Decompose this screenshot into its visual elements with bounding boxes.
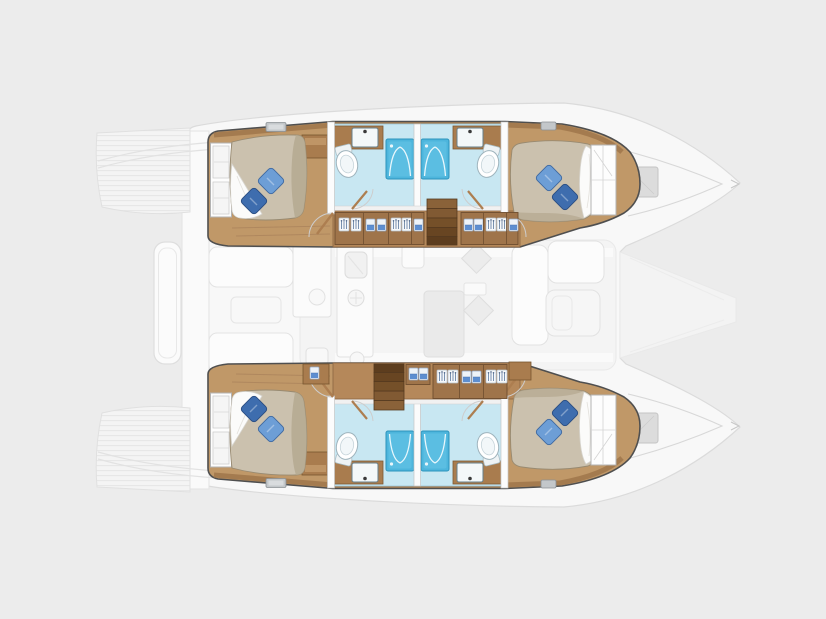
drawer-icon [414, 219, 423, 231]
drawer-icon [377, 219, 386, 231]
galley-round-fixture [309, 289, 325, 305]
hanging-clothes-icon [339, 218, 349, 231]
hanging-clothes-icon [448, 370, 458, 383]
swim-platform-starboard [96, 406, 190, 492]
side-table [464, 283, 486, 295]
drawer-icon [462, 371, 471, 383]
corridor-shelf [509, 362, 531, 380]
hanging-clothes-icon [486, 218, 496, 231]
swim-platform-port [96, 128, 190, 214]
saloon-seat [402, 245, 424, 268]
drawer-icon [366, 219, 375, 231]
drawer-icon [472, 371, 481, 383]
companionway-stairs-port [427, 199, 457, 245]
walkway-bottom [335, 353, 613, 362]
floorplan-canvas [0, 0, 826, 619]
sofa-vertical [512, 245, 548, 345]
saloon-ghost [293, 237, 616, 370]
drawer-icon [474, 219, 483, 231]
hanging-clothes-icon [402, 218, 412, 231]
drawer-icon [310, 367, 319, 379]
galley-counter-aft [293, 241, 331, 317]
drawer-icon [419, 368, 428, 380]
saloon-table [424, 291, 464, 357]
catamaran-floorplan [0, 0, 826, 619]
hanging-clothes-icon [437, 370, 447, 383]
drawer-icon [409, 368, 418, 380]
cockpit-bench-top [209, 247, 293, 287]
hanging-clothes-icon [351, 218, 361, 231]
drawer-icon [509, 219, 518, 231]
companionway-stairs-starboard [374, 364, 404, 410]
drawer-icon [464, 219, 473, 231]
hanging-clothes-icon [497, 218, 507, 231]
cockpit-table [231, 297, 281, 323]
sofa-horizontal [548, 241, 604, 283]
hanging-clothes-icon [391, 218, 401, 231]
hanging-clothes-icon [497, 370, 507, 383]
hanging-clothes-icon [486, 370, 496, 383]
